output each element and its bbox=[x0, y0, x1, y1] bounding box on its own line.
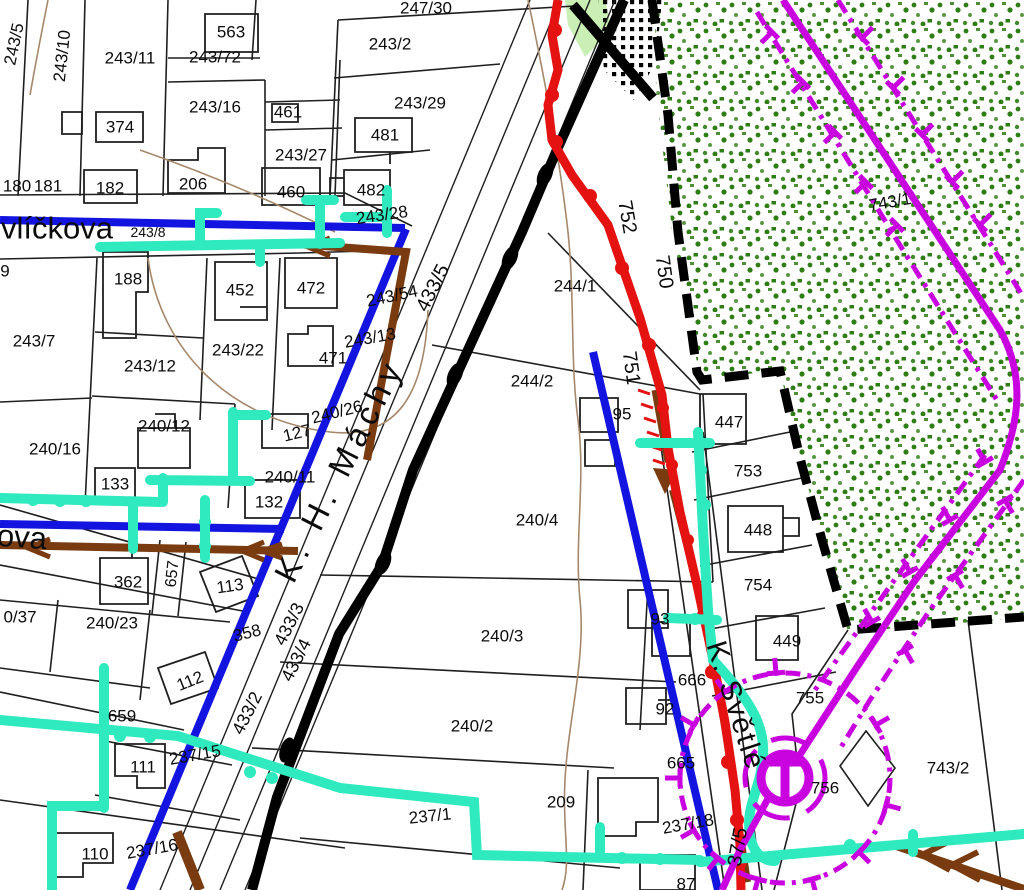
contour-lines bbox=[30, 0, 581, 890]
cadastral-map: vlíčkovaovaK. H. MáchyK. Světlé243/5243/… bbox=[0, 0, 1024, 890]
transformer-station-symbol bbox=[745, 738, 825, 818]
map-linework bbox=[0, 0, 1024, 890]
